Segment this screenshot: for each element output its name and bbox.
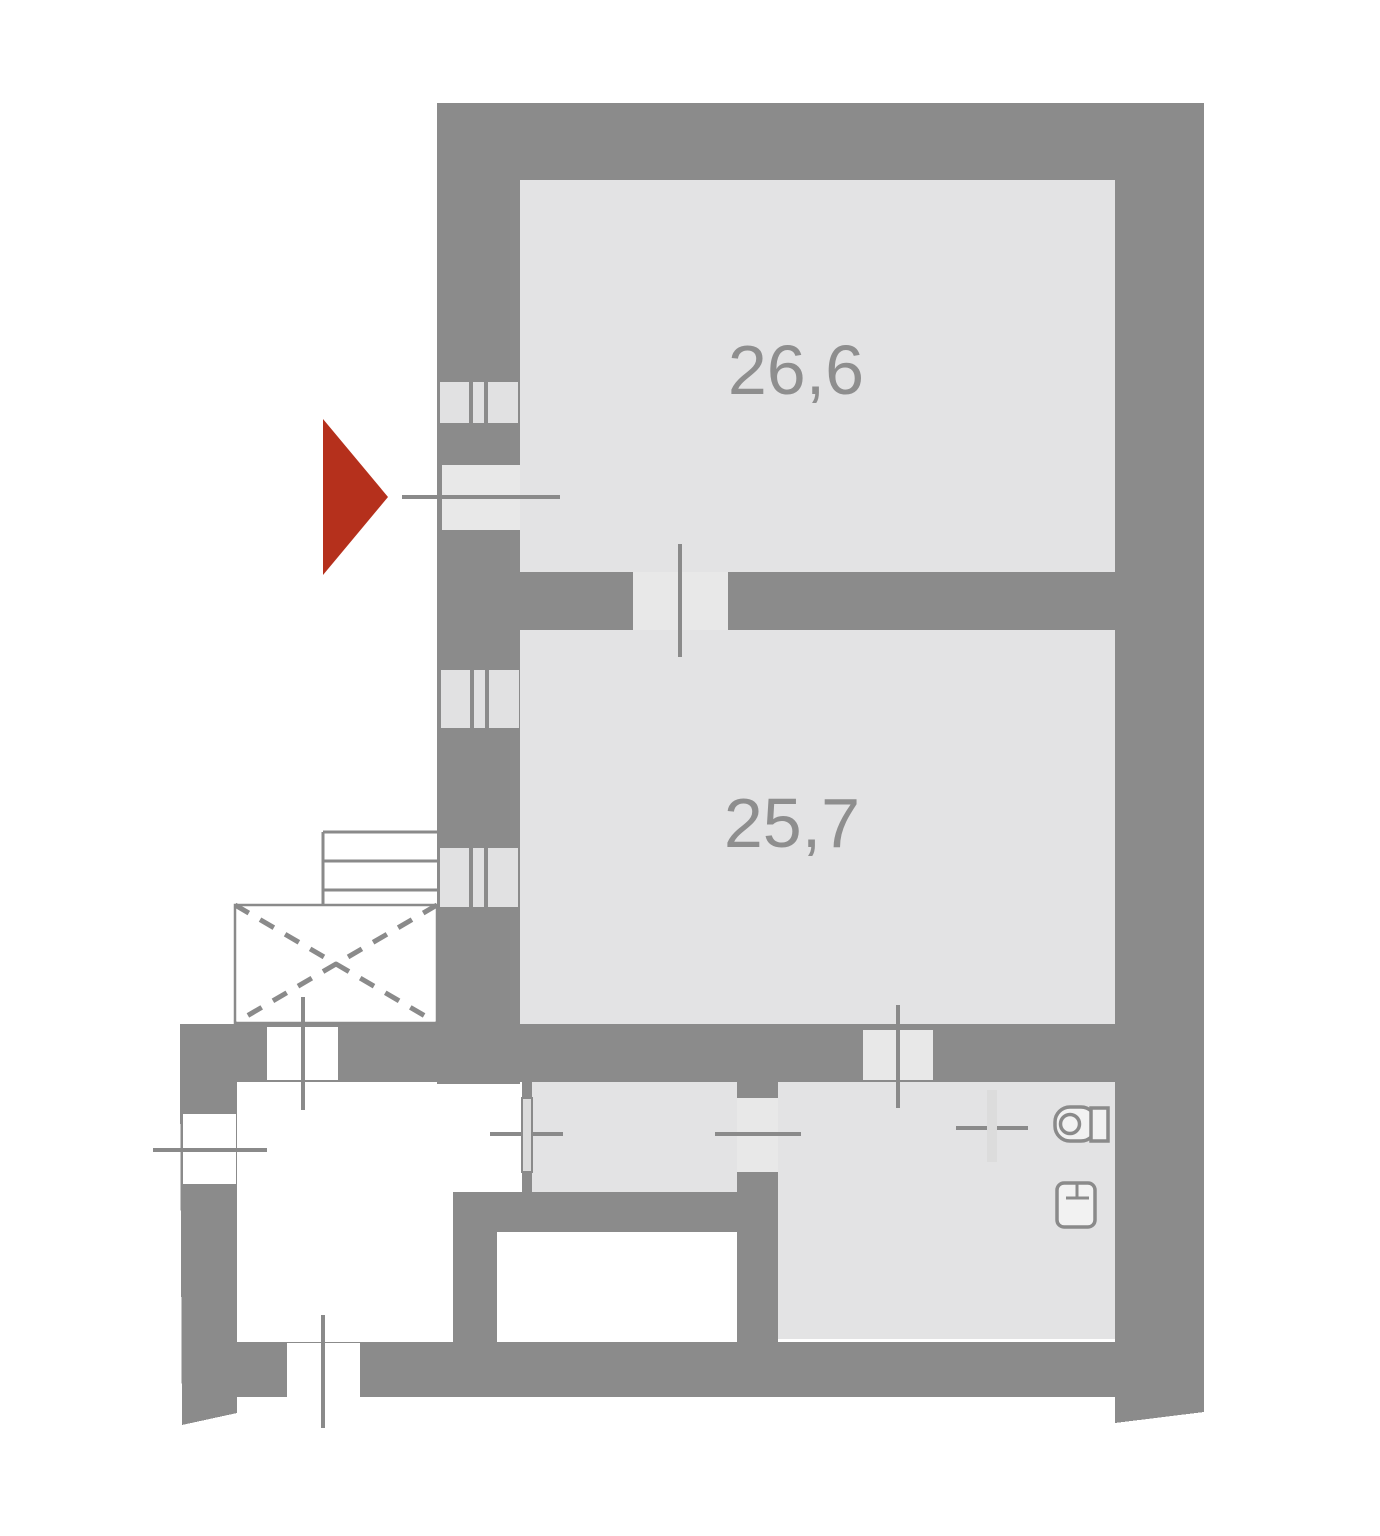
- hallway-floor: [532, 1082, 737, 1192]
- window-icon: [440, 382, 518, 423]
- window-pane: [440, 848, 518, 907]
- wall-bottom-band: [237, 1342, 1115, 1397]
- window-mullion: [469, 382, 473, 423]
- window-mullion: [469, 848, 473, 907]
- wall-left: [437, 103, 520, 1084]
- room-area-label: 25,7: [724, 784, 860, 862]
- room-area-label: 26,6: [728, 331, 864, 409]
- window-pane: [441, 670, 519, 728]
- wall-right: [1115, 103, 1204, 1423]
- window-mullion: [470, 670, 474, 728]
- wall-room-divider: [520, 572, 1115, 630]
- window-pane: [440, 382, 518, 423]
- washbasin-icon: [1057, 1183, 1095, 1227]
- floor-plan: 26,6 25,7: [0, 0, 1380, 1536]
- wc-door-leaf: [987, 1090, 997, 1162]
- window-icon: [441, 670, 519, 728]
- toilet-icon: [1055, 1107, 1108, 1141]
- wall-shaft-right: [737, 1192, 778, 1342]
- hall-door-leaf: [522, 1098, 532, 1172]
- window-mullion: [484, 848, 488, 907]
- entrance-arrow-icon: [323, 419, 388, 575]
- wall-shaft-top: [453, 1192, 778, 1232]
- shaft-cross-icon: [235, 905, 437, 1023]
- floor-plan-canvas: 26,6 25,7: [0, 0, 1380, 1536]
- window-icon: [440, 848, 518, 907]
- toilet-tank: [1091, 1108, 1108, 1141]
- wall-bottom-right-jut: [1115, 1396, 1204, 1423]
- window-mullion: [485, 670, 489, 728]
- wall-top: [437, 103, 1204, 180]
- window-mullion: [484, 382, 488, 423]
